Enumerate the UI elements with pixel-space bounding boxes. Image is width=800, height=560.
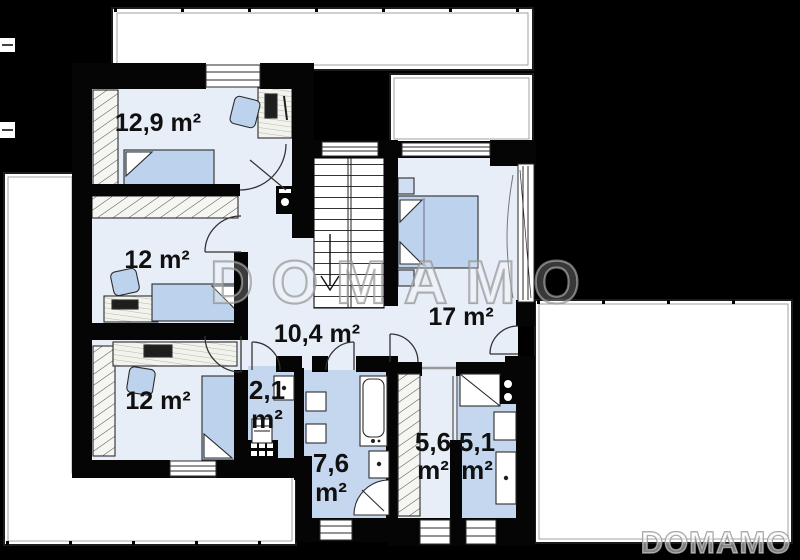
watermark-corner: DOMAMO <box>641 525 792 560</box>
monitor-icon <box>265 94 277 118</box>
wardrobe-icon <box>93 90 118 186</box>
floor-plan-svg: 12,9 m² 12 m² 12 m² 10,4 m² 17 m² 2,1 m²… <box>0 0 800 560</box>
room-label-wc: 2,1 <box>249 375 285 405</box>
wall <box>388 518 535 546</box>
bathtub-icon <box>360 376 387 446</box>
window <box>402 143 490 156</box>
room-label-bathroom-unit: m² <box>315 477 347 507</box>
floor-plan-canvas: 12,9 m² 12 m² 12 m² 10,4 m² 17 m² 2,1 m²… <box>0 0 800 560</box>
wall <box>516 376 535 518</box>
window <box>320 520 352 540</box>
washer-icon <box>306 392 326 411</box>
window <box>420 520 450 544</box>
room-label-wc-unit: m² <box>251 404 283 434</box>
room-label-utility: 5,1 <box>459 427 495 457</box>
wardrobe-icon <box>92 196 238 218</box>
wall <box>292 63 314 238</box>
wall <box>72 460 170 478</box>
room-label-bedroom2: 12 m² <box>124 246 189 274</box>
room-label-wardrobe: 5,6 <box>415 427 451 457</box>
sink-icon <box>494 412 516 440</box>
wall <box>72 63 206 89</box>
monitor-icon <box>112 300 138 309</box>
desk-icon <box>113 342 237 366</box>
wardrobe-icon <box>93 346 115 456</box>
cabinet-icon <box>306 424 326 443</box>
room-label-wardrobe-unit: m² <box>417 455 449 485</box>
wall <box>72 323 248 340</box>
wall <box>234 458 312 478</box>
window <box>206 65 260 87</box>
room-label-bathroom: 7,6 <box>313 448 349 478</box>
room-label-hallway: 10,4 m² <box>274 320 360 348</box>
terrace-right <box>535 300 792 543</box>
wall <box>490 140 536 166</box>
room-label-bedroom3: 12 m² <box>125 387 190 415</box>
wall <box>72 63 92 478</box>
wall <box>92 184 240 196</box>
wall <box>356 356 398 372</box>
window <box>170 461 216 476</box>
window <box>466 520 496 544</box>
edge-marks <box>0 38 15 138</box>
room-label-bedroom1: 12,9 m² <box>115 109 201 137</box>
monitor-icon <box>144 345 172 357</box>
window <box>322 142 378 156</box>
watermark-center: DOMAMO <box>210 249 598 316</box>
wall <box>506 362 535 376</box>
nightstand-icon <box>398 178 414 194</box>
room-label-utility-unit: m² <box>461 455 493 485</box>
